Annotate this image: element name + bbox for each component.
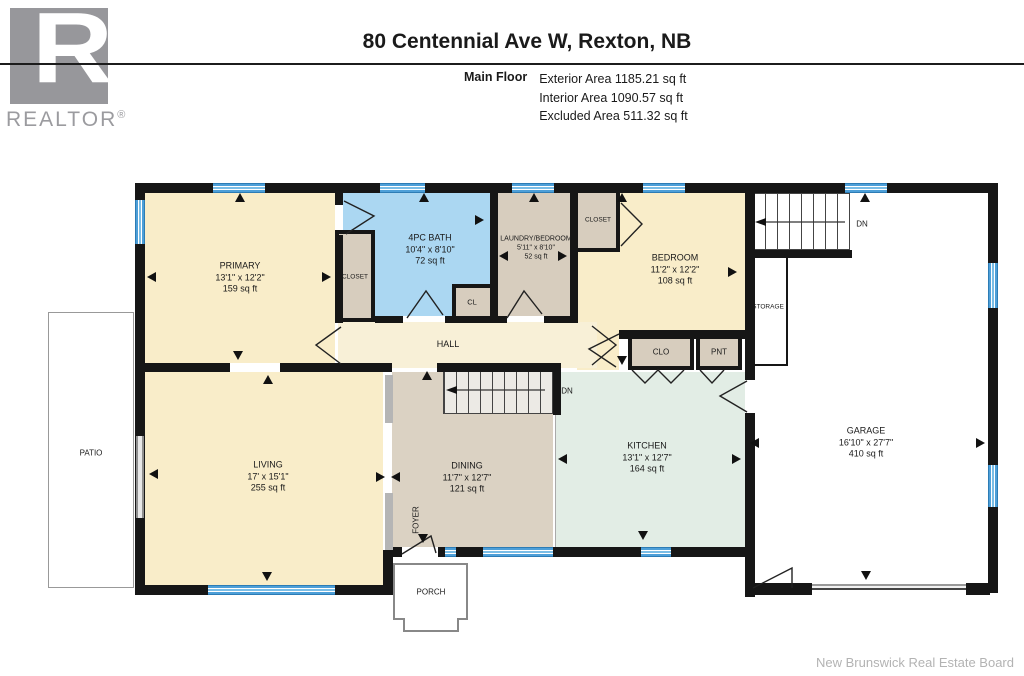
wall-segment [135, 183, 145, 595]
wall-segment [553, 547, 642, 557]
window [643, 183, 685, 193]
hall-area [338, 322, 597, 368]
window [988, 263, 998, 308]
realtor-wordmark: REALTOR® [6, 108, 127, 132]
room-label-garage: GARAGE16'10" x 27'7"410 sq ft [839, 425, 893, 460]
window [512, 183, 554, 193]
wall-segment [492, 316, 507, 323]
room-label-bath: 4PC BATH10'4" x 8'10"72 sq ft [405, 232, 454, 267]
registered-mark: ® [117, 109, 127, 121]
storage-label: STORAGE [752, 304, 784, 311]
exterior-area: Exterior Area 1185.21 sq ft [539, 70, 687, 89]
wall-opening [385, 375, 393, 423]
wall-segment [553, 363, 561, 415]
wall-segment [445, 316, 492, 323]
stairs-upper [752, 193, 850, 250]
wall-segment [748, 250, 852, 258]
room-label-laundry: LAUNDRY/BEDROOM5'11" x 8'10"52 sq ft [500, 234, 571, 261]
window [135, 200, 145, 244]
hall-label: HALL [437, 339, 460, 349]
wall-segment [750, 583, 812, 595]
dn-upper-label: DN [856, 220, 868, 229]
clo-label: CLO [653, 348, 669, 357]
foyer-label: FOYER [412, 506, 421, 534]
excluded-area: Excluded Area 511.32 sq ft [539, 107, 687, 126]
wall-segment [490, 193, 498, 323]
interior-area: Interior Area 1090.57 sq ft [539, 89, 687, 108]
window [483, 547, 553, 557]
window [380, 183, 425, 193]
window [845, 183, 887, 193]
kitchen-dining-divider [555, 415, 556, 547]
dn-lower-label: DN [561, 387, 573, 396]
wall-opening [385, 493, 393, 550]
wall-segment [745, 413, 755, 597]
floor-label: Main Floor [464, 70, 527, 126]
room-label-bedroom: BEDROOM11'2" x 12'2"108 sq ft [651, 252, 700, 287]
porch-label: PORCH [417, 588, 446, 597]
wall-segment [671, 547, 755, 557]
header-divider [0, 63, 1024, 65]
cl-label: CL [467, 298, 477, 307]
pnt-label: PNT [711, 348, 727, 357]
window [213, 183, 265, 193]
wall-segment [437, 363, 561, 372]
wall-segment [135, 363, 230, 372]
wall-segment [335, 193, 343, 205]
floorplan-page: { "header": { "title": "80 Centennial Av… [0, 0, 1024, 676]
realtor-logo: R [10, 8, 108, 104]
window [641, 547, 671, 557]
primary-closet-label: CLOSET [342, 274, 368, 281]
page-title: 80 Centennial Ave W, Rexton, NB [30, 30, 1024, 54]
room-label-dining: DINING11'7" x 12'7"121 sq ft [443, 460, 492, 495]
wall-segment [745, 183, 755, 380]
area-summary: Main Floor Exterior Area 1185.21 sq ft I… [464, 70, 688, 126]
wall-segment [988, 183, 998, 593]
porch-steps [403, 618, 459, 632]
wall-segment [619, 330, 745, 339]
room-label-kitchen: KITCHEN13'1" x 12'7"164 sq ft [622, 440, 671, 475]
stairs-lower [443, 368, 553, 414]
window [208, 585, 335, 595]
patio-label: PATIO [80, 449, 103, 458]
window [445, 547, 456, 557]
wall-segment [438, 547, 445, 557]
garage-door [812, 584, 966, 590]
room-label-primary: PRIMARY13'1" x 12'2"159 sq ft [215, 260, 264, 295]
room-label-living: LIVING17' x 15'1"255 sq ft [247, 459, 288, 494]
patio-door [136, 436, 144, 518]
bedroom-closet-label: CLOSET [585, 217, 611, 224]
wall-segment [966, 583, 990, 595]
wall-segment [456, 547, 484, 557]
window [988, 465, 998, 507]
wall-segment [280, 363, 392, 372]
wall-segment [375, 316, 403, 323]
